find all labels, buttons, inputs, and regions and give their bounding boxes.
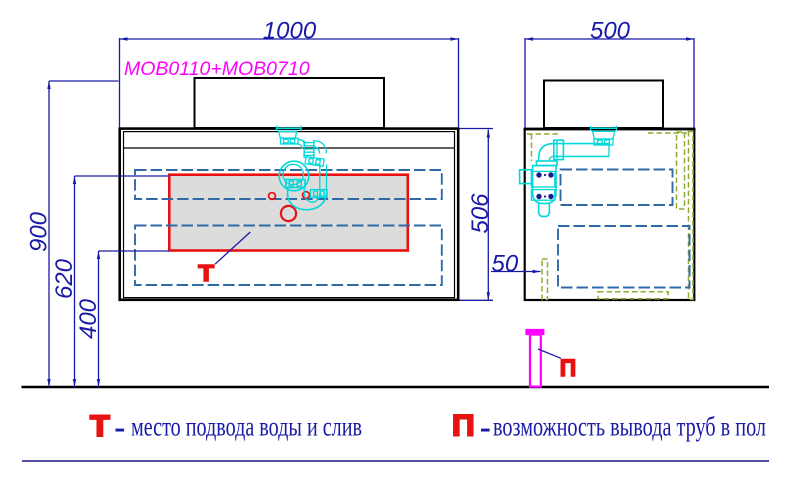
svg-text:Т: Т (90, 410, 110, 443)
svg-text:П: П (560, 355, 576, 382)
svg-text:MOB0110+MOB0710: MOB0110+MOB0710 (124, 58, 310, 80)
svg-text:Т: Т (198, 260, 215, 286)
svg-text:П: П (452, 410, 475, 443)
svg-text:500: 500 (590, 18, 631, 45)
svg-text:50: 50 (492, 250, 519, 277)
svg-text:400: 400 (75, 298, 102, 339)
svg-text:1000: 1000 (263, 18, 317, 45)
svg-text:возможность вывода труб в пол: возможность вывода труб в пол (493, 411, 766, 442)
svg-text:место подвода воды и слив: место подвода воды и слив (131, 411, 362, 442)
svg-text:506: 506 (467, 193, 494, 234)
svg-text:900: 900 (26, 211, 53, 252)
svg-text:620: 620 (51, 258, 78, 299)
